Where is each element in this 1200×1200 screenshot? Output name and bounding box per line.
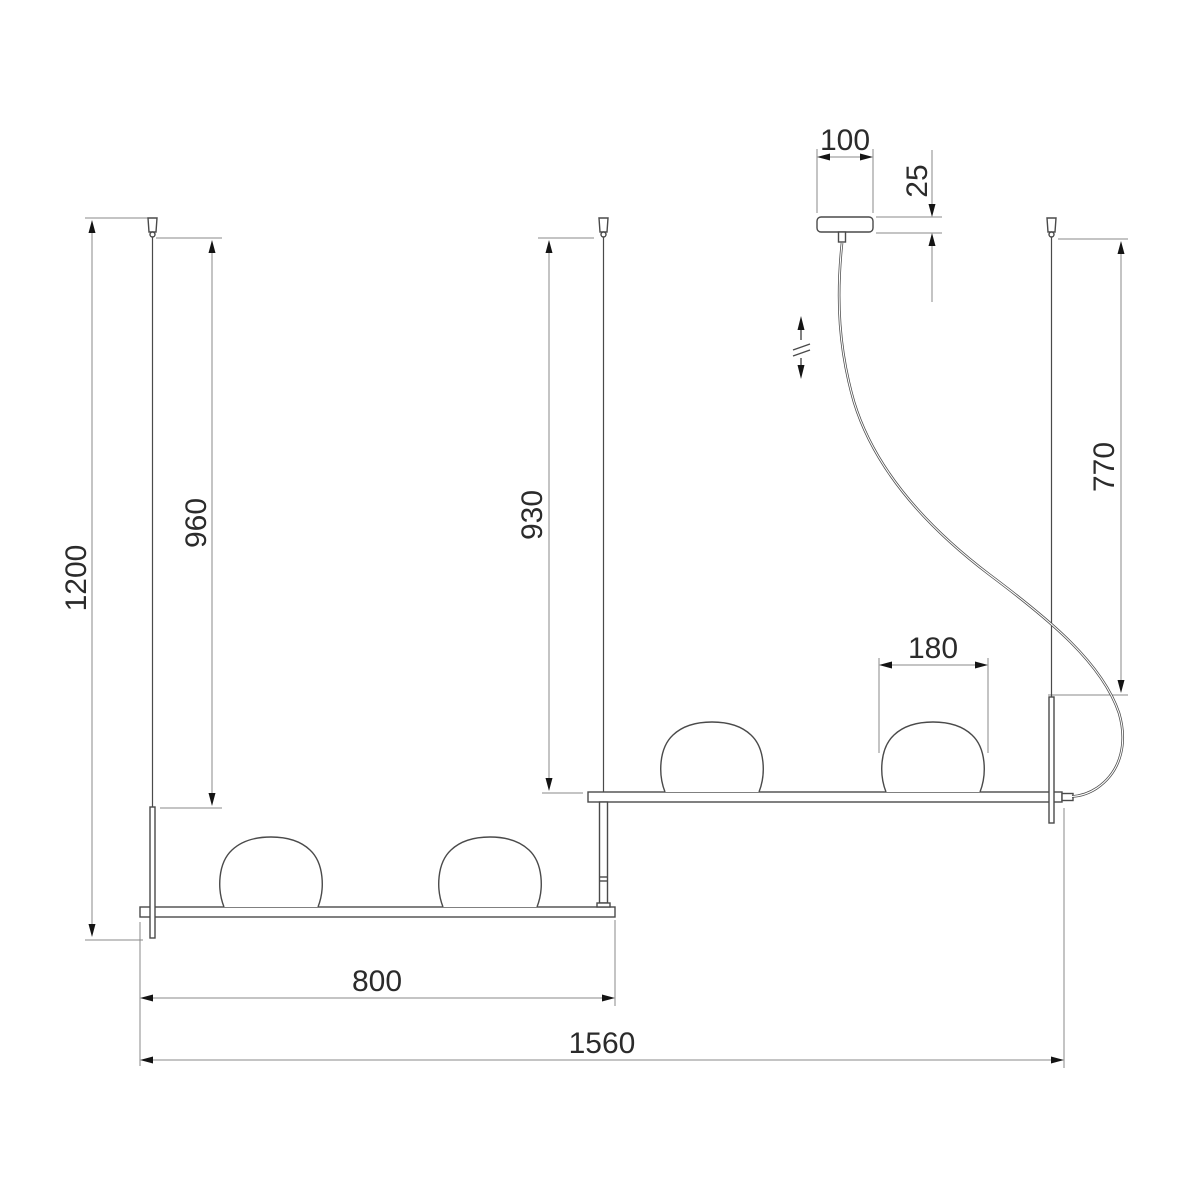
dim-label-960: 960 (180, 498, 213, 548)
connecting-post (597, 802, 610, 907)
dim-label-770: 770 (1088, 442, 1121, 492)
dome-shade-upper-left (661, 722, 763, 792)
dim-label-180: 180 (908, 632, 958, 665)
dome-shade-upper-right (882, 722, 984, 792)
dim-canopy-width: 100 (817, 124, 873, 213)
adjustable-height-icon (793, 316, 810, 379)
cable-end-connector (1062, 794, 1073, 801)
dim-label-930: 930 (516, 490, 549, 540)
dim-overall-drop: 1200 (60, 218, 150, 940)
dome-shade-lower-right (439, 837, 541, 907)
dim-lower-bar-length: 800 (140, 920, 615, 1066)
height-adjuster-tube-left (150, 807, 155, 938)
dim-canopy-height: 25 (876, 150, 942, 302)
height-adjuster-tube-right (1049, 697, 1054, 823)
pendant-light-dimension-drawing: 1200 960 930 770 100 (0, 0, 1200, 1200)
dim-label-1200: 1200 (60, 545, 93, 612)
dim-label-1560: 1560 (569, 1027, 636, 1060)
power-cable (839, 243, 1123, 797)
upper-bar (588, 792, 1062, 802)
ceiling-mount-right (1047, 218, 1056, 237)
dim-label-100: 100 (820, 124, 870, 157)
ceiling-mount-left (148, 218, 157, 237)
dim-left-suspension: 960 (156, 238, 222, 808)
dim-middle-suspension: 930 (516, 238, 594, 793)
dim-label-25: 25 (901, 164, 934, 197)
dome-shade-lower-left (220, 837, 322, 907)
dim-label-800: 800 (352, 965, 402, 998)
drawing-canvas: 1200 960 930 770 100 (0, 0, 1200, 1200)
dim-right-suspension: 770 (1048, 239, 1128, 695)
lower-bar (140, 907, 615, 917)
ceiling-mount-middle (599, 218, 608, 237)
ceiling-canopy (817, 217, 873, 242)
